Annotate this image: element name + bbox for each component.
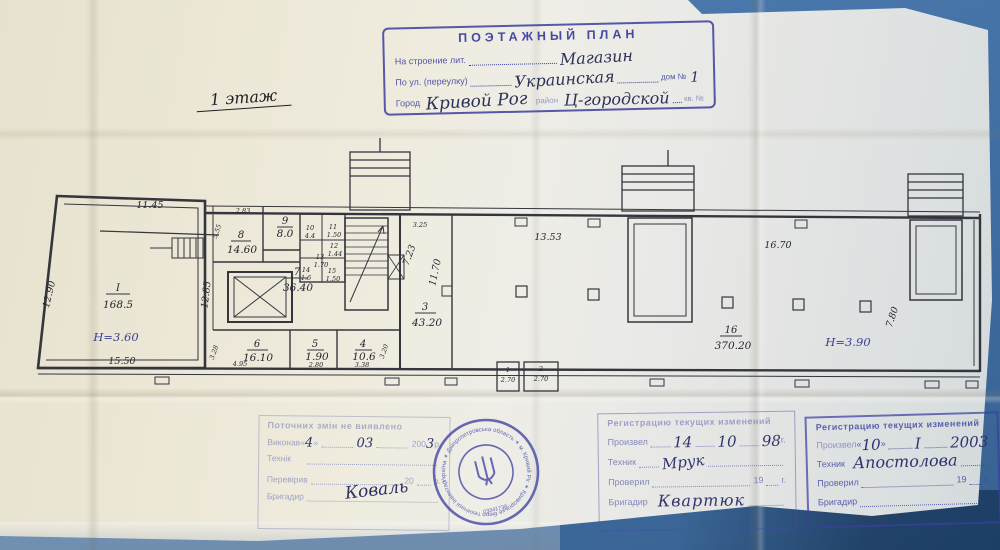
dotted-line (970, 476, 982, 485)
entrance-porch-1 (350, 138, 410, 210)
room-7-number: 7 (294, 267, 301, 278)
city-label: Город (396, 99, 421, 109)
room-13-number: 13 (316, 253, 324, 261)
room-3-area: 43.20 (411, 317, 442, 329)
room-12-number: 12 (330, 242, 338, 250)
dotted-line (766, 477, 778, 486)
photographed-floor-plan-document: I 168.5 Н=3.60 8 14.60 9 8.0 10 4.4 11 1… (0, 0, 1000, 550)
city-value: Кривой Рог (426, 90, 529, 115)
dotted-line (672, 88, 681, 104)
room-15-number: 15 (328, 267, 336, 275)
room-8-number: 8 (238, 230, 244, 241)
room-13-area: 1.70 (314, 261, 328, 269)
district-label: район (536, 97, 558, 106)
dim-2-83: 2.83 (235, 207, 250, 215)
room-12-area: 1.44 (328, 250, 342, 258)
dim-4-95: 4.95 (232, 360, 247, 368)
month-value: І (915, 435, 921, 452)
trident-emblem (474, 455, 497, 487)
room-1-area: 2.70 (500, 376, 515, 384)
dotted-line (748, 497, 783, 507)
room-11-area: 1.50 (327, 231, 341, 239)
dotted-line (470, 70, 511, 86)
room-2-number: 2 (538, 365, 543, 373)
dim-11-70: 11.70 (427, 258, 443, 287)
room-16-area: 370.20 (715, 340, 752, 352)
room-4-number: 4 (359, 339, 366, 350)
technician-label: Техник (608, 458, 636, 468)
room-9-area: 8.0 (277, 228, 294, 240)
dim-3-38: 3.38 (355, 361, 369, 369)
street-label: По ул. (переулку) (395, 77, 468, 89)
room-3-number: 3 (422, 302, 428, 313)
dotted-line (708, 457, 783, 467)
district-value: Ц-городской (564, 90, 670, 110)
header-stamp: ПОЭТАЖНЫЙ ПЛАН На строение лит. Магазин … (382, 20, 716, 116)
dotted-line (960, 457, 985, 467)
dimension-labels: 11.45 12.90 15.50 12.85 2.83 5.55 3.25 7… (41, 200, 901, 369)
foreman-label: Бригадир (608, 498, 647, 508)
dotted-line (695, 438, 714, 447)
room-10-number: 10 (306, 224, 314, 232)
quote-close: » (881, 440, 886, 450)
check-year: 19 (753, 476, 763, 486)
checked-label: Перевірив (267, 475, 308, 485)
quote-close: » (313, 438, 318, 447)
performed-label: Произвел (816, 440, 857, 451)
room-8-area: 14.60 (227, 244, 257, 256)
house-no-label: дом № (661, 73, 687, 82)
plan-walls (38, 138, 980, 391)
hall-columns (516, 286, 871, 312)
registration-stamp-2003: Регистрацию текущих изменений Произвел «… (804, 411, 1000, 528)
dim-3-20: 3.20 (378, 343, 390, 359)
room-14-area: 1.6 (301, 274, 311, 282)
technician-signature: Мрук (661, 452, 705, 473)
dim-3-25: 3.25 (413, 221, 427, 229)
checked-label: Проверил (817, 478, 859, 489)
executed-label: Виконав (267, 438, 300, 448)
room-15-area: 1.50 (326, 275, 340, 283)
room-6-area: 16.10 (243, 352, 273, 364)
dotted-line (860, 495, 987, 508)
dim-3-28: 3.28 (208, 344, 220, 360)
dotted-line (889, 440, 912, 450)
month-value: 10 (717, 433, 736, 450)
checked-label: Проверил (608, 478, 650, 488)
year-value: 98 (762, 432, 781, 449)
room-11-number: 11 (329, 223, 337, 231)
dotted-line (617, 67, 658, 83)
check-year-suffix: г. (781, 476, 786, 486)
room-14-number: 14 (302, 266, 310, 274)
height-note-right: Н=3.90 (824, 335, 870, 349)
room-I-area: 168.5 (103, 299, 133, 311)
year-value: 2003 (950, 433, 989, 451)
shaft-center (628, 218, 692, 322)
dim-16-70: 16.70 (764, 240, 791, 251)
dotted-line (651, 438, 670, 447)
room-I-number: I (115, 283, 121, 294)
dim-7-23: 7.23 (401, 243, 419, 267)
check-year: 19 (956, 475, 966, 485)
entrance-porch-2 (622, 150, 694, 211)
room-6-number: 6 (254, 339, 261, 350)
dotted-line (639, 458, 659, 467)
foreman-label: Бригадир (818, 497, 858, 508)
apt-no-label: кв. № (684, 94, 704, 103)
staircase-main (345, 218, 388, 310)
building-label: На строение лит. (395, 56, 466, 68)
dim-13-53: 13.53 (534, 232, 561, 243)
room-2-area: 2.70 (533, 375, 548, 383)
shaft-right (910, 220, 962, 300)
row-foreman: Бригадир Квартюк (608, 486, 786, 508)
dim-12-85: 12.85 (199, 281, 213, 309)
registration-stamp-1998: Регистрацию текущих изменений Произвел 1… (597, 411, 797, 532)
room-5-number: 5 (312, 339, 318, 350)
day-value: 10 (861, 436, 881, 453)
dim-11-45: 11.45 (136, 200, 163, 211)
row-performed: Произвел 14 10 98 г. (607, 426, 785, 448)
dim-2-80: 2.80 (308, 361, 323, 369)
dotted-line (740, 437, 759, 446)
dotted-line (321, 439, 354, 448)
technician-label: Технік (267, 453, 291, 463)
check-year-suffix: г. (984, 475, 989, 485)
room-7-area: 36.40 (283, 282, 313, 294)
room-10-area: 4.4 (304, 232, 315, 240)
foreman-signature: Квартюк (658, 492, 746, 511)
dim-12-90: 12.90 (41, 280, 58, 309)
dotted-line (924, 439, 947, 449)
bottom-pilasters (155, 377, 978, 388)
dotted-line (653, 477, 751, 487)
elevator-shaft (228, 272, 292, 322)
technician-signature: Апостолова (853, 452, 958, 473)
dim-15-50: 15.50 (108, 356, 135, 367)
staircase-room-I (150, 238, 203, 258)
entrance-porch-3 (908, 174, 963, 216)
performed-label: Произвел (608, 438, 648, 448)
house-no-value: 1 (690, 70, 699, 86)
foreman-label: Бригадир (267, 492, 304, 502)
dotted-line (469, 48, 557, 65)
dim-7-80: 7.80 (884, 305, 901, 329)
room-16-number: 16 (725, 325, 738, 336)
row-technician: Техник Мрук (608, 446, 786, 468)
height-note-left: Н=3.60 (92, 330, 138, 344)
day-value: 14 (673, 434, 692, 451)
technician-label: Техник (817, 460, 846, 471)
room-1-number: 1 (506, 366, 510, 374)
year-suffix: г. (781, 436, 786, 446)
room-9-number: 9 (282, 216, 289, 227)
